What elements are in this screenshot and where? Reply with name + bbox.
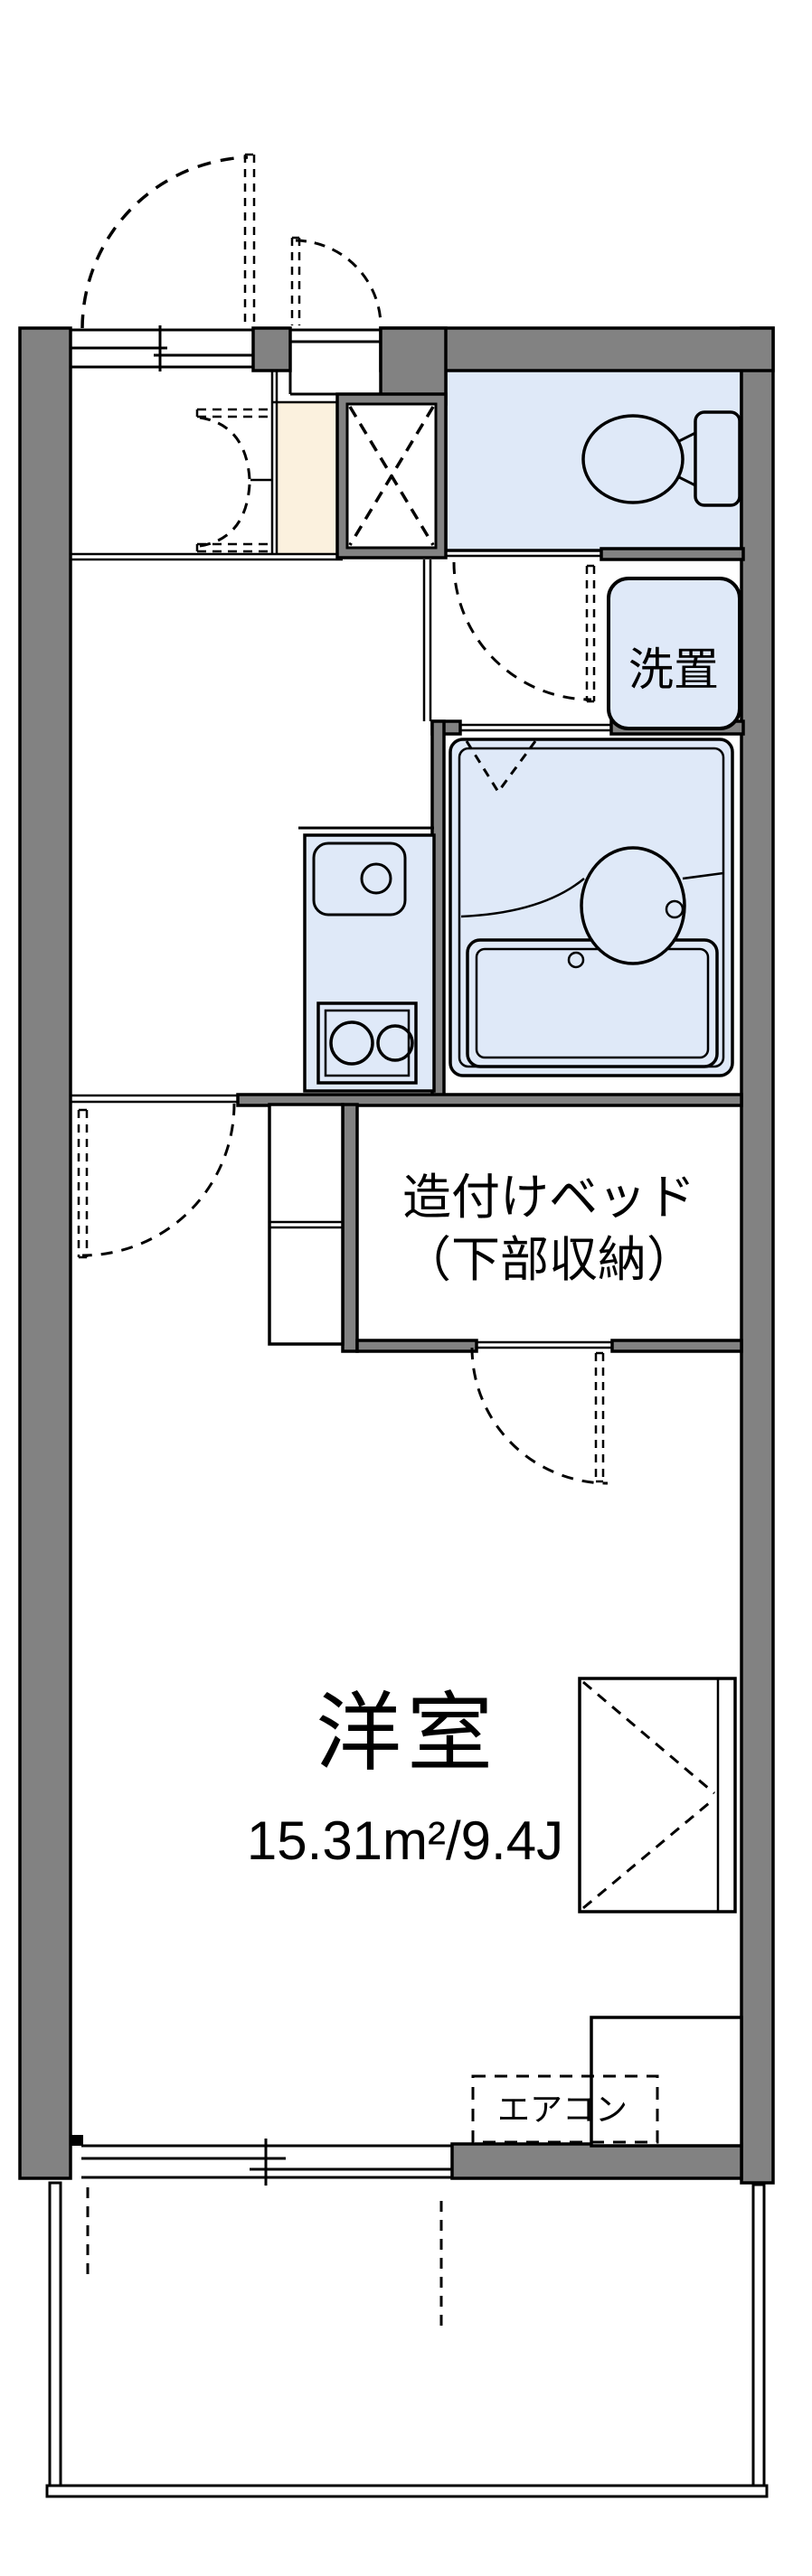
wash-basin: [581, 848, 685, 964]
balcony: [47, 2183, 767, 2496]
corridor-door-arc: [82, 1104, 234, 1255]
washer-space: 洗置: [609, 578, 740, 729]
wall-bed-bottom-right: [612, 1340, 741, 1351]
toilet-bowl: [583, 416, 683, 503]
wall-right: [741, 328, 773, 2183]
room-area-label: 15.31m²/9.4J: [247, 1810, 563, 1871]
washer-label: 洗置: [628, 644, 719, 695]
balcony-rail-right: [753, 2185, 764, 2496]
bathtub: [467, 940, 717, 1067]
top-sliding-window: [70, 325, 253, 371]
floorplan-page: 洗置: [0, 0, 812, 2576]
entry-door2-arc: [296, 240, 381, 323]
balcony-sliding-window: [71, 2135, 452, 2186]
aircon-label: エアコン: [497, 2091, 628, 2128]
shoe-closet: [347, 404, 436, 548]
mainroom-door-arc: [472, 1348, 608, 1483]
main-room: 洋室 15.31m²/9.4J: [247, 1686, 563, 1871]
entry-door2-leaf: [292, 238, 299, 325]
wall-left: [20, 328, 71, 2178]
kitchen: [298, 828, 434, 1091]
corridor-door-leaf: [79, 1110, 87, 1257]
genkan-floor: [278, 403, 342, 555]
balcony-rail-bottom: [47, 2486, 767, 2496]
hall-closet-doors: [197, 409, 272, 551]
entry-door-arc: [82, 157, 248, 328]
wall-bottom-right: [452, 2144, 741, 2178]
mainroom-door-leaf: [596, 1353, 603, 1481]
toilet-door-arc: [454, 562, 591, 700]
wall-shelf-bed: [343, 1105, 357, 1351]
bathroom: [450, 739, 732, 1076]
wall-toilet-bottom: [601, 549, 743, 559]
bed-label-line1: 造付けベッド: [402, 1170, 695, 1225]
built-in-bed-area: 造付けベッド （下部収納）: [402, 1170, 695, 1287]
toilet-tank: [695, 412, 740, 505]
floorplan-svg: 洗置: [0, 0, 812, 2576]
entry-door-leaf: [245, 155, 254, 328]
shelf-unit: [269, 1105, 343, 1344]
toilet-door-leaf: [587, 566, 594, 701]
main-closet: [580, 1678, 735, 1912]
wall-bed-bottom-left: [357, 1340, 477, 1351]
bed-label-line2: （下部収納）: [402, 1233, 695, 1287]
room-name-label: 洋室: [316, 1686, 498, 1782]
entry-recess: [290, 328, 381, 394]
balcony-rail-left: [50, 2183, 61, 2496]
kitchen-sink: [314, 843, 405, 915]
toilet: [583, 412, 740, 505]
kitchen-stove: [318, 1003, 416, 1083]
wall-top-stub: [253, 328, 290, 371]
